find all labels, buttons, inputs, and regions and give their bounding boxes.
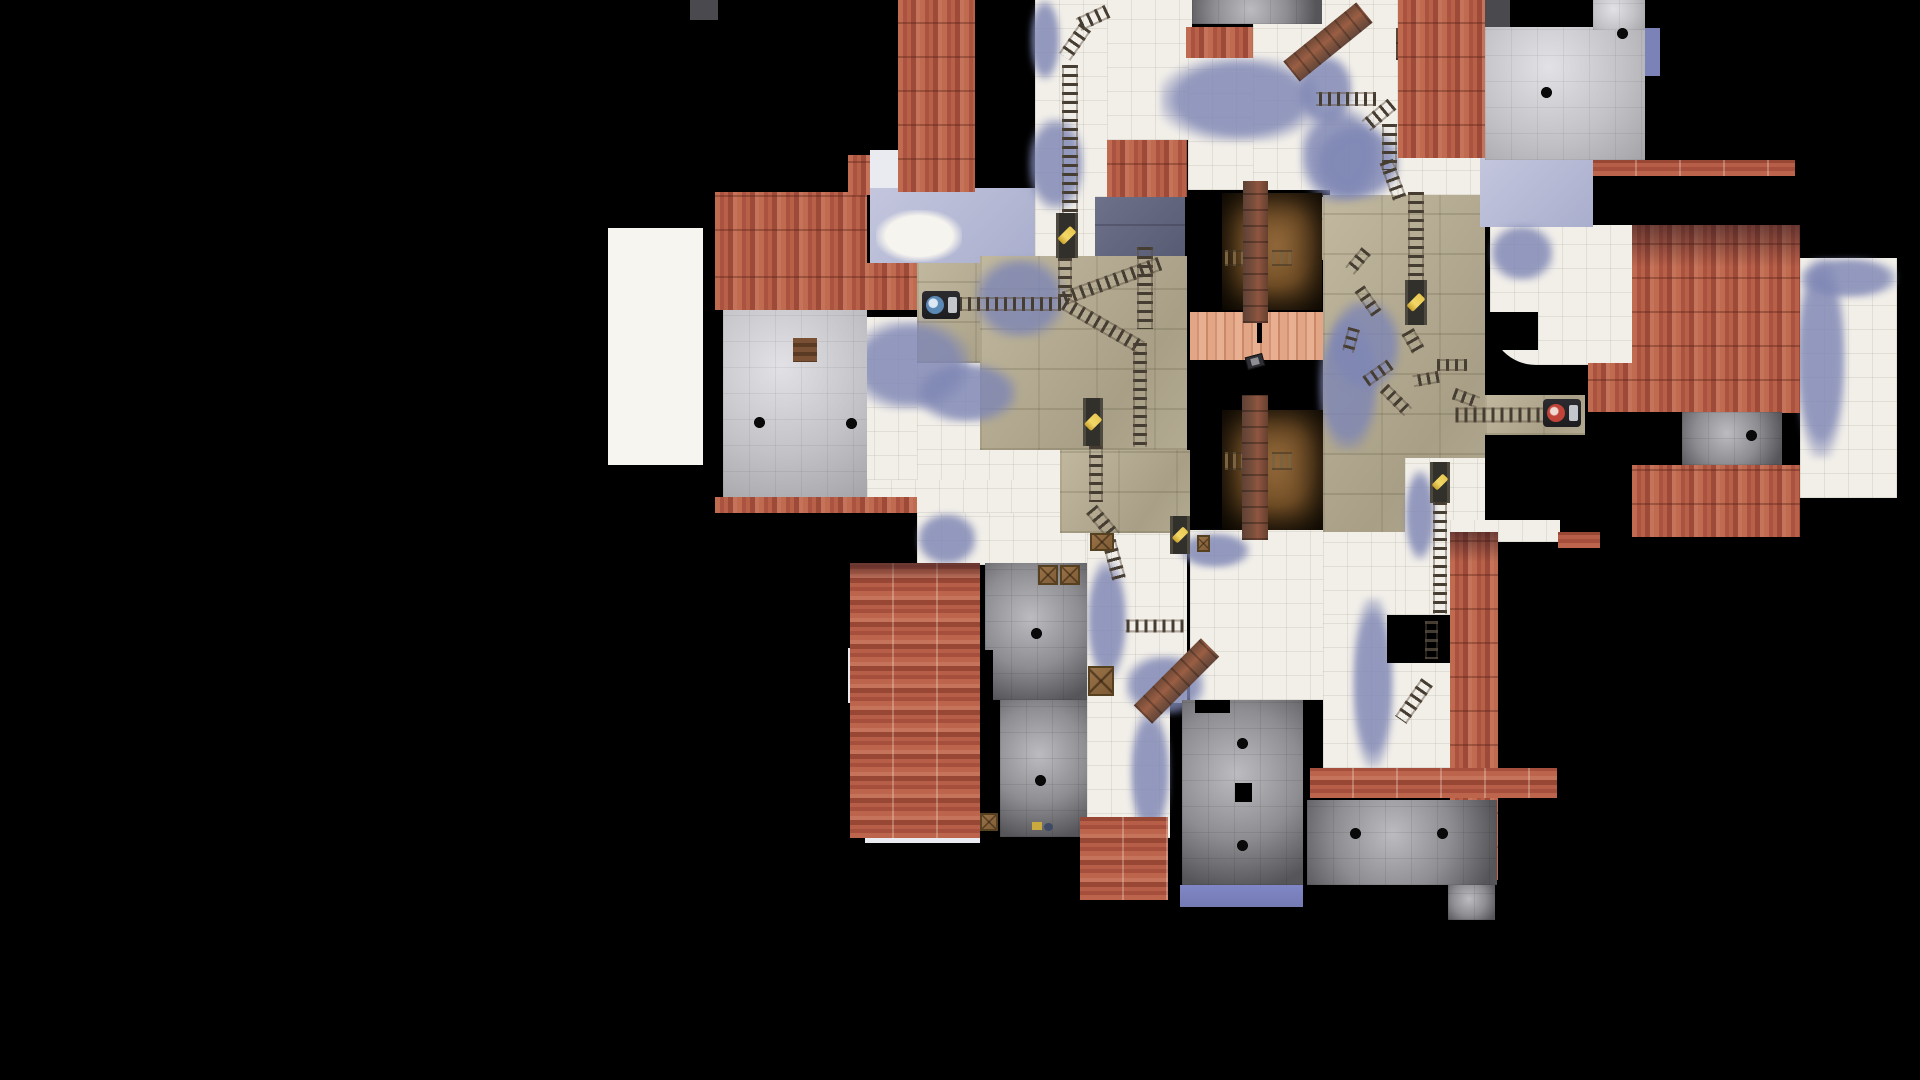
plank-bridge-pit-north <box>1243 181 1268 323</box>
roof-vent <box>1236 737 1249 750</box>
rail-track <box>1408 192 1424 284</box>
cast-shadow <box>917 363 1017 423</box>
cast-shadow <box>1180 533 1250 568</box>
payload-cart-blu <box>922 291 960 319</box>
roof-vent <box>1540 86 1553 99</box>
brick-roof <box>1080 817 1168 900</box>
brick-chimney-nw <box>898 0 975 192</box>
roof-hatch <box>1235 783 1252 802</box>
big-brick-roof-sw <box>850 563 980 838</box>
crate <box>1060 565 1080 585</box>
brick-bit <box>1558 532 1600 548</box>
ramp-marker <box>1056 213 1078 258</box>
roof-vent <box>1436 827 1449 840</box>
rail-track <box>1126 620 1184 633</box>
cast-shadow <box>1800 258 1897 298</box>
gray-roof-se <box>1682 412 1782 465</box>
roof-vent <box>1349 827 1362 840</box>
rail-track <box>1425 621 1438 659</box>
roof-vent <box>753 416 766 429</box>
prop-yellow <box>1032 822 1042 830</box>
brick-roof <box>1632 465 1800 537</box>
gray-roof-strip <box>1192 0 1322 24</box>
skylight-opening <box>1490 312 1538 350</box>
pit-track-stub <box>1272 250 1292 266</box>
brick-roof <box>1107 140 1187 197</box>
brick-roof <box>1186 27 1253 58</box>
rail-track <box>1137 247 1153 329</box>
ramp-marker <box>1083 398 1103 446</box>
crate <box>1038 565 1058 585</box>
roof-notch <box>1195 700 1230 713</box>
roof-shade <box>850 563 980 581</box>
pit-track-stub <box>1225 250 1245 266</box>
rail-track-stub <box>1437 359 1467 371</box>
crate <box>1197 535 1210 552</box>
roof-vent <box>1616 27 1629 40</box>
blue-wall-sliver <box>1645 28 1660 76</box>
roof-gap <box>1587 412 1682 465</box>
roof-shade <box>1632 225 1800 267</box>
prop-blue <box>1044 823 1053 831</box>
gray-roof-s2 <box>1000 700 1087 837</box>
gray-roof-ne <box>1485 27 1645 160</box>
ramp-marker <box>1170 516 1190 554</box>
roof-shade <box>1450 532 1498 562</box>
plank-bridge-pit-south <box>1242 395 1268 540</box>
roof-vent <box>845 417 858 430</box>
cast-shadow <box>917 513 977 565</box>
cast-shadow <box>1490 225 1554 281</box>
roof-notch <box>980 650 993 700</box>
ramp-marker <box>1430 462 1450 503</box>
brick-roof <box>715 263 917 310</box>
roof-vent <box>1030 627 1043 640</box>
brick-strip-s <box>1310 768 1557 798</box>
gray-bit <box>1485 0 1510 27</box>
cast-shadow <box>1030 0 1060 80</box>
gray-roof-ne <box>1593 0 1645 30</box>
roof-gap <box>1510 0 1593 27</box>
roof-vent <box>1236 839 1249 852</box>
dirt-pit-south <box>1222 410 1323 530</box>
rail-track <box>1062 65 1078 215</box>
brick-roof <box>848 155 870 195</box>
roof-vent <box>1745 429 1758 442</box>
map-canvas[interactable] <box>0 0 1920 1080</box>
crate <box>1090 533 1114 551</box>
track-pit-box <box>1387 615 1448 663</box>
brick-roof <box>1588 363 1632 413</box>
rail-track <box>1433 502 1447 614</box>
crate-pallet <box>1088 666 1114 696</box>
rail-track <box>1316 92 1376 106</box>
gray-roof-s5 <box>1448 885 1495 920</box>
shaded-snow <box>1480 158 1593 227</box>
rail-track <box>1089 446 1103 502</box>
gray-bit-top <box>690 0 718 20</box>
gray-roof-s4 <box>1307 800 1497 885</box>
pit-track-stub <box>1272 452 1292 470</box>
roof-vent <box>1034 774 1047 787</box>
white-panel-roof <box>608 228 703 465</box>
payload-cart-red <box>1543 399 1581 427</box>
brick-roof <box>715 497 917 513</box>
stairs <box>793 338 817 362</box>
spawn-strip-blue <box>1180 885 1303 907</box>
brick-strip-east <box>1593 160 1795 176</box>
white-sliver <box>865 838 980 843</box>
roof-edge <box>715 310 723 498</box>
brick-roof-ne <box>1398 0 1486 158</box>
rail-track <box>1133 343 1147 447</box>
ramp-marker <box>1405 280 1427 325</box>
sunlit-patch <box>876 210 962 262</box>
brick-roof <box>715 192 867 263</box>
crate <box>980 813 998 831</box>
